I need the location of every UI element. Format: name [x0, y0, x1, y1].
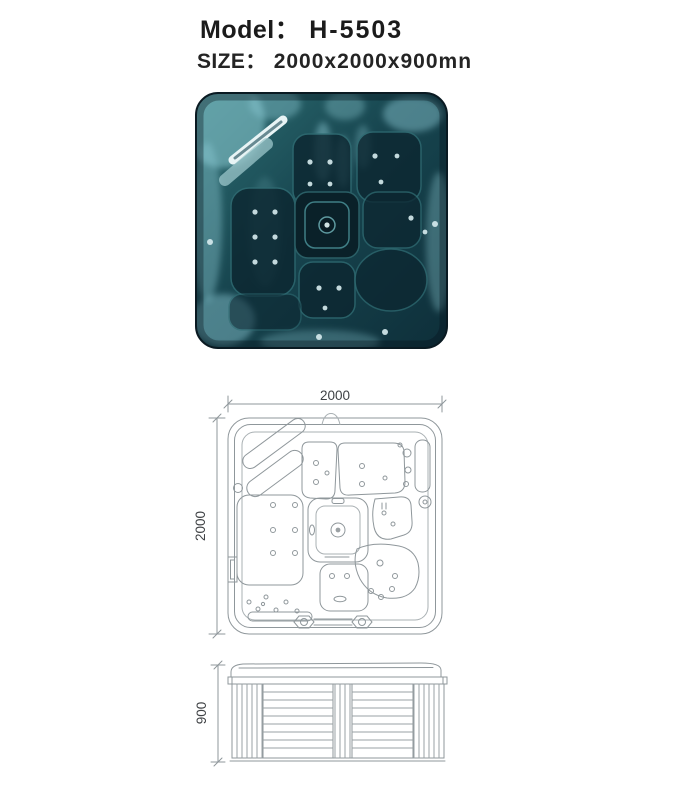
side-height-dimension-label: 900 — [194, 702, 209, 725]
plan-view-drawing: 2000 2000 — [185, 383, 465, 650]
product-photo-image — [195, 92, 448, 349]
plan-depth-dimension-line — [209, 414, 225, 638]
model-line: Model：H-5503 — [200, 10, 403, 46]
product-photo — [195, 92, 448, 354]
plan-depth-dimension-label: 2000 — [193, 511, 208, 541]
model-value: H-5503 — [309, 16, 403, 44]
side-height-dimension-line — [211, 661, 225, 766]
side-elevation-drawing: 900 — [185, 648, 465, 783]
model-label: Model： — [200, 16, 300, 44]
plan-width-dimension-label: 2000 — [320, 388, 350, 403]
spec-sheet-page: Model：H-5503 SIZE：2000x2000x900mn — [0, 0, 700, 800]
size-label: SIZE： — [197, 50, 267, 73]
size-value: 2000x2000x900mn — [274, 50, 472, 73]
size-line: SIZE：2000x2000x900mn — [197, 45, 472, 75]
